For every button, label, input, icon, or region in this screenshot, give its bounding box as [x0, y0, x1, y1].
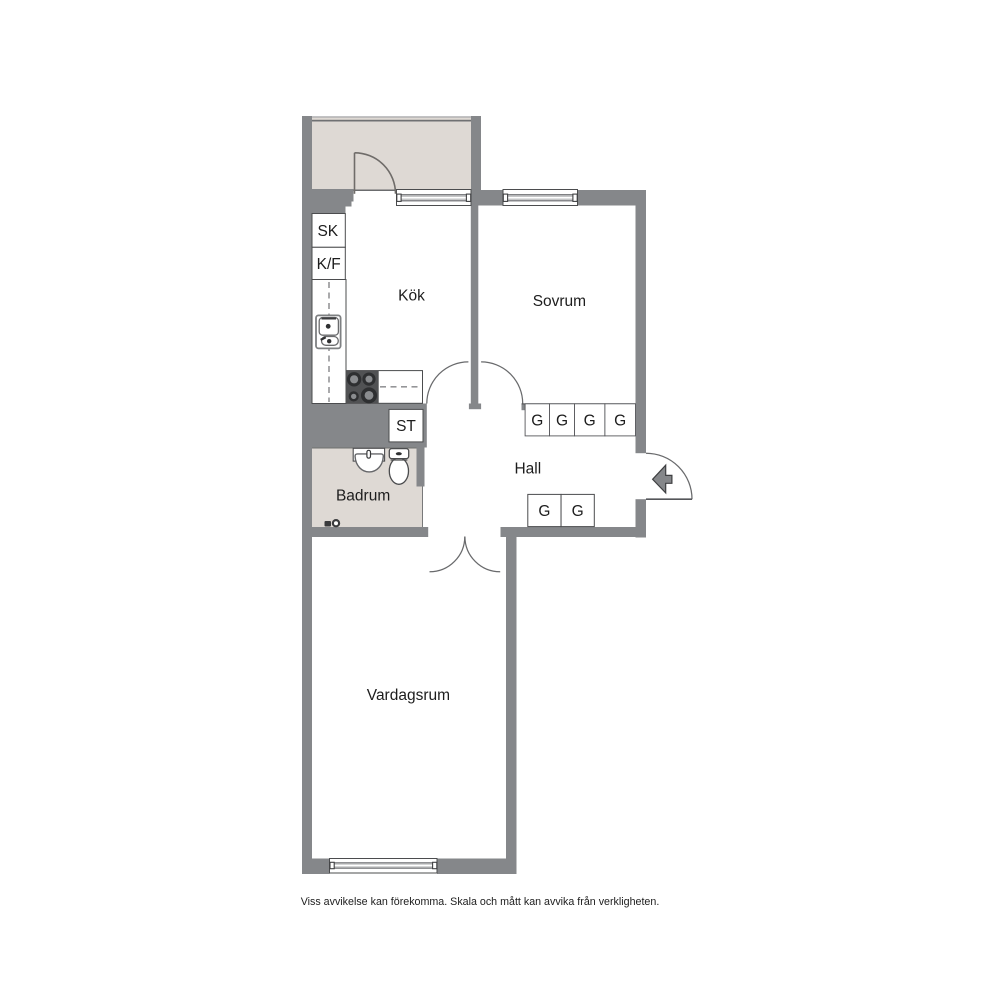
svg-text:Kök: Kök — [398, 288, 425, 305]
svg-text:Hall: Hall — [514, 460, 541, 477]
svg-text:ST: ST — [396, 418, 416, 435]
svg-text:G: G — [556, 413, 568, 430]
svg-text:G: G — [614, 413, 626, 430]
svg-text:G: G — [531, 413, 543, 430]
svg-text:G: G — [584, 413, 596, 430]
svg-text:Badrum: Badrum — [336, 488, 390, 505]
svg-text:Sovrum: Sovrum — [533, 293, 586, 310]
svg-text:SK: SK — [317, 223, 338, 240]
svg-text:Vardagsrum: Vardagsrum — [367, 687, 450, 704]
svg-text:Viss avvikelse kan förekomma.: Viss avvikelse kan förekomma. Skala och … — [301, 896, 660, 908]
svg-text:G: G — [572, 503, 584, 520]
svg-text:K/F: K/F — [317, 256, 341, 273]
svg-text:G: G — [538, 503, 550, 520]
